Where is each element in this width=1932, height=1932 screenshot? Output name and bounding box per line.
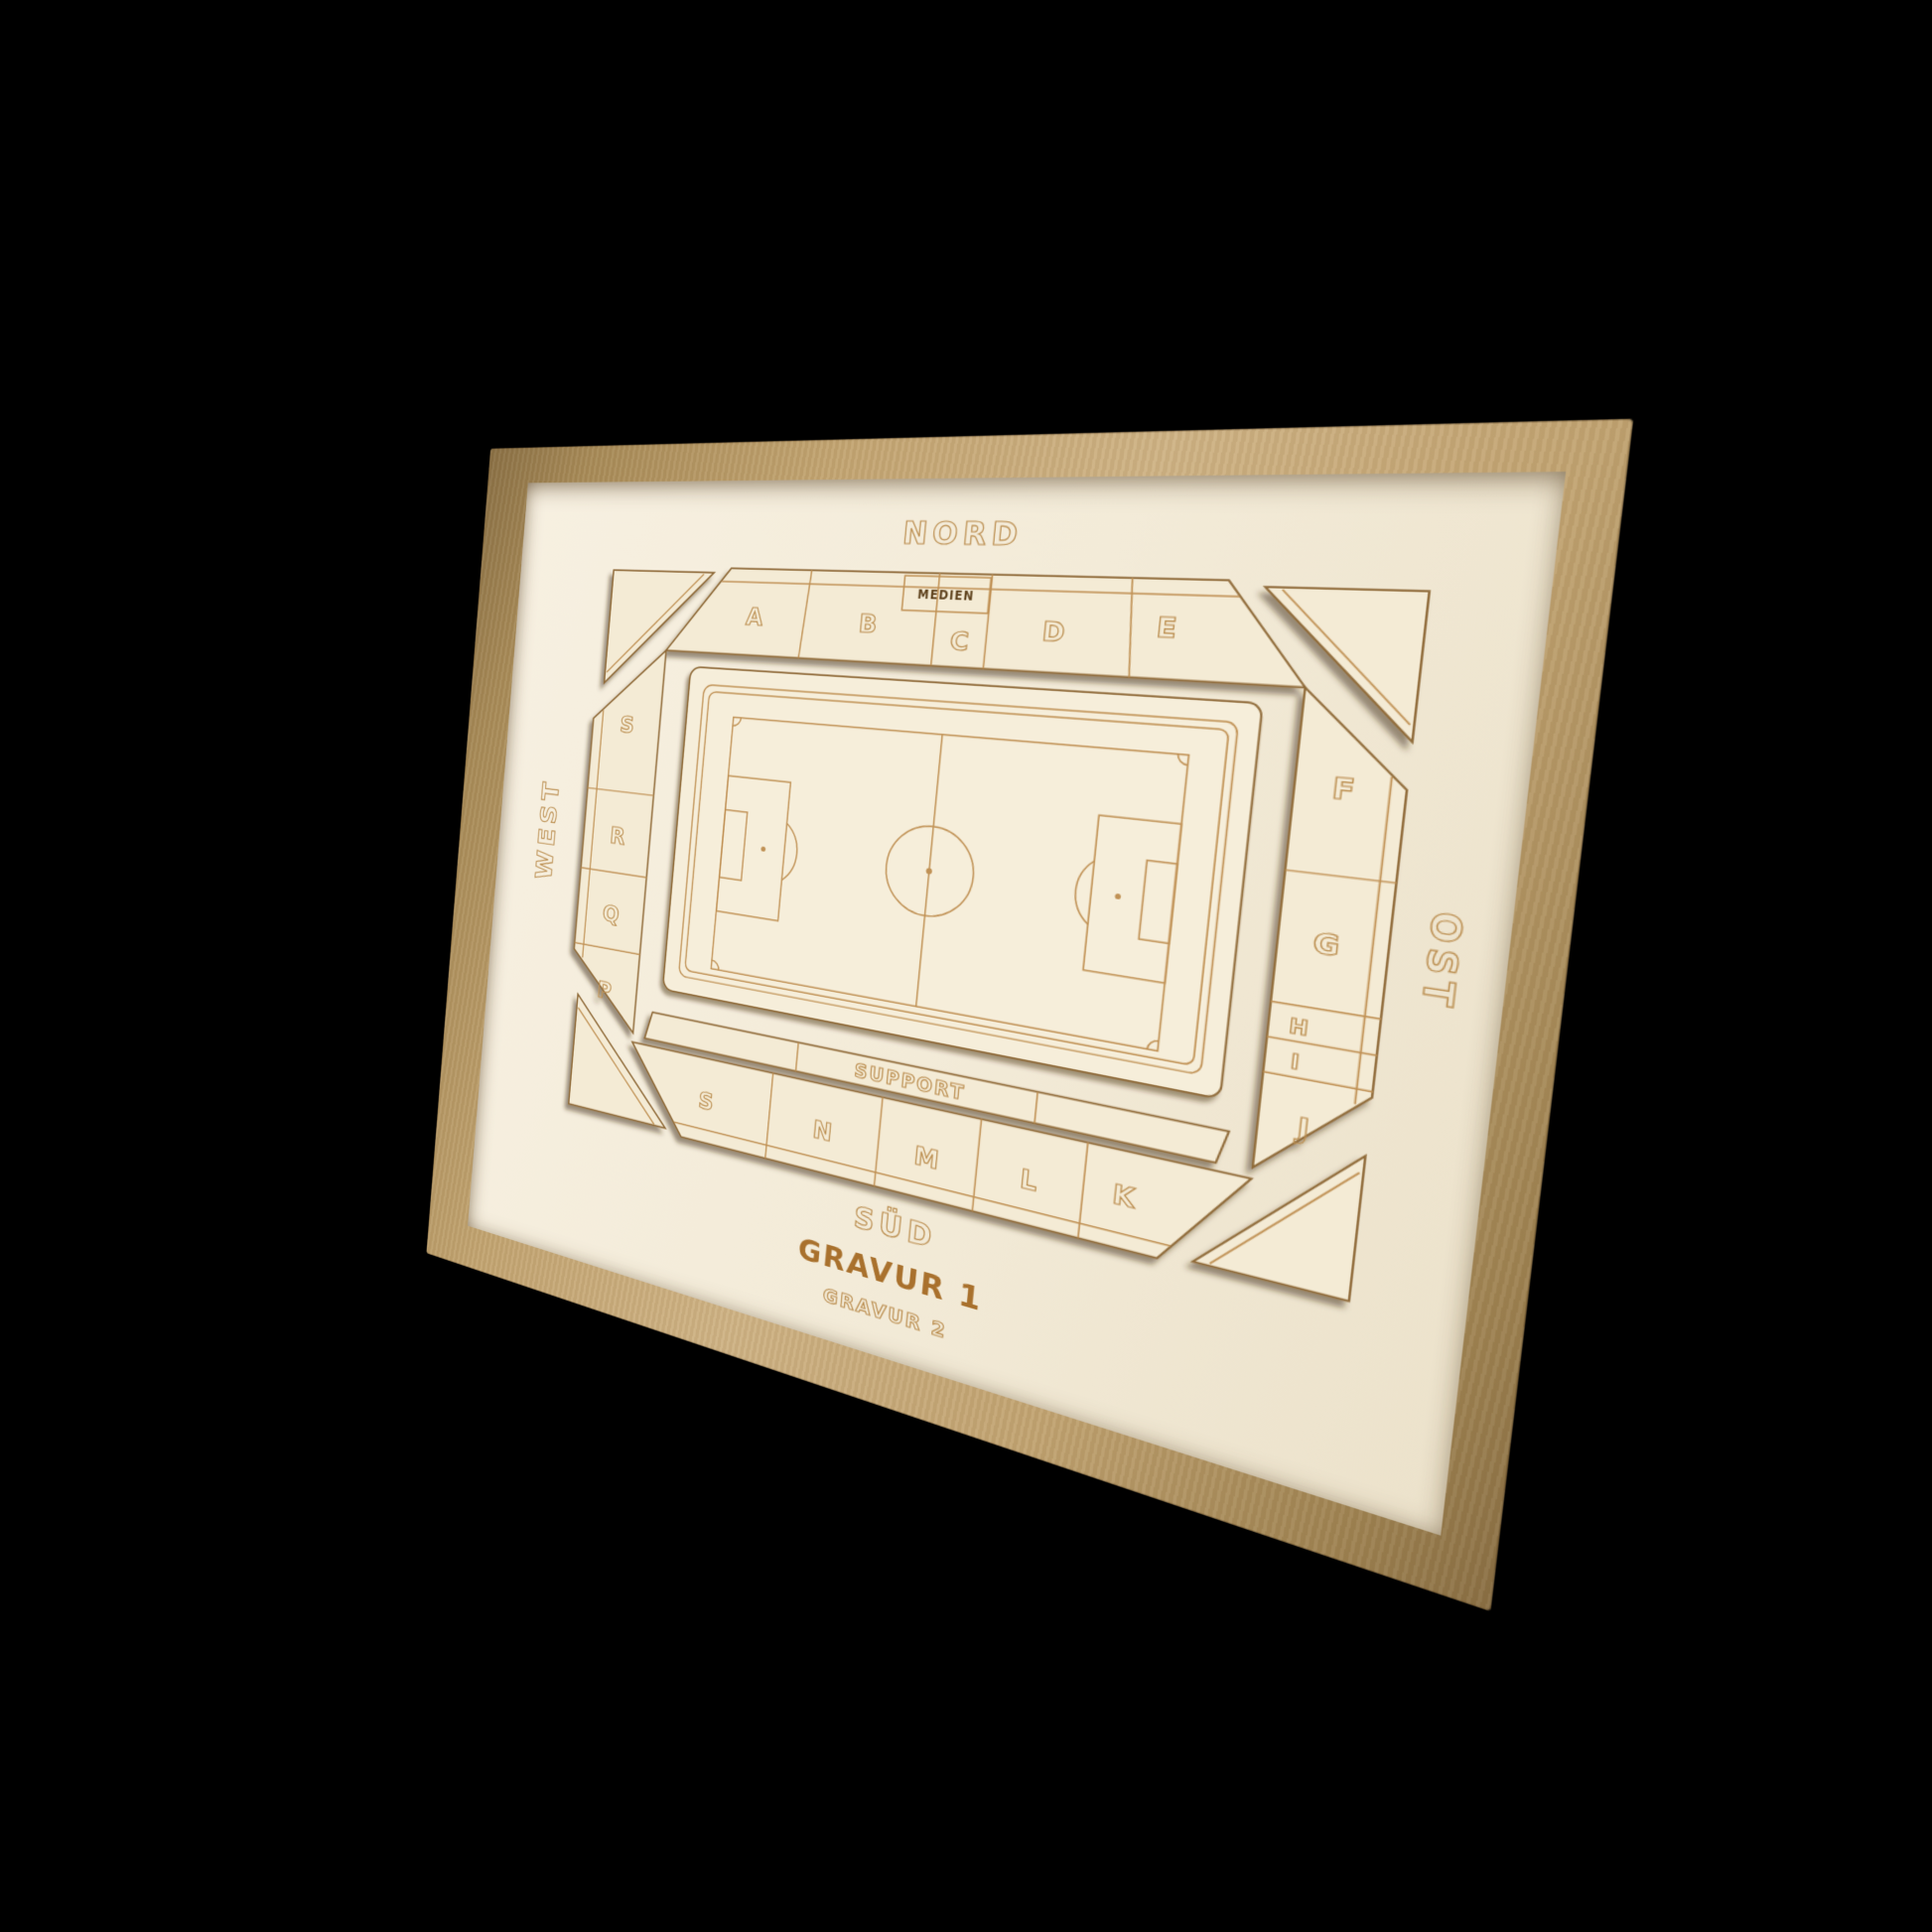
wooden-frame: NORD SÜD WEST OST GRAVUR 1 GRAVUR 2 xyxy=(426,419,1633,1611)
section-label-north-1: A xyxy=(745,603,764,631)
section-label-west-1: S xyxy=(619,712,634,740)
section-label-west-3: Q xyxy=(602,899,621,928)
media-box-label: MEDIEN xyxy=(917,590,975,605)
compass-label-west: WEST xyxy=(531,777,565,882)
north-stand: MEDIEN A B C D E xyxy=(666,567,1316,687)
section-label-west-2: R xyxy=(609,823,625,852)
section-label-south-1: S xyxy=(697,1086,715,1117)
section-label-east-2: G xyxy=(1311,926,1342,964)
compass-label-east: OST xyxy=(1412,908,1472,1015)
section-label-north-4: D xyxy=(1040,616,1066,648)
product-photo: NORD SÜD WEST OST GRAVUR 1 GRAVUR 2 xyxy=(0,0,1932,1932)
section-label-east-3: H xyxy=(1288,1013,1310,1040)
section-label-south-4: L xyxy=(1019,1164,1038,1198)
compass-label-north: NORD xyxy=(901,516,1025,554)
frame-wrap: NORD SÜD WEST OST GRAVUR 1 GRAVUR 2 xyxy=(426,419,1633,1611)
section-label-east-1: F xyxy=(1330,772,1356,809)
section-label-north-3: C xyxy=(948,626,970,658)
stadium-plan: NORD SÜD WEST OST GRAVUR 1 GRAVUR 2 xyxy=(468,472,1566,1536)
section-label-north-2: B xyxy=(858,609,879,638)
section-label-south-2: N xyxy=(811,1115,833,1148)
section-label-west-4: P xyxy=(597,976,613,1005)
west-stand: S R Q P xyxy=(568,646,666,1033)
base-board: NORD SÜD WEST OST GRAVUR 1 GRAVUR 2 xyxy=(468,472,1566,1536)
compass-label-south: SÜD xyxy=(852,1198,938,1257)
section-label-south-3: M xyxy=(912,1141,940,1176)
section-label-north-5: E xyxy=(1155,612,1177,645)
east-stand: F G H I J xyxy=(1253,687,1418,1190)
section-label-south-5: K xyxy=(1111,1178,1138,1215)
